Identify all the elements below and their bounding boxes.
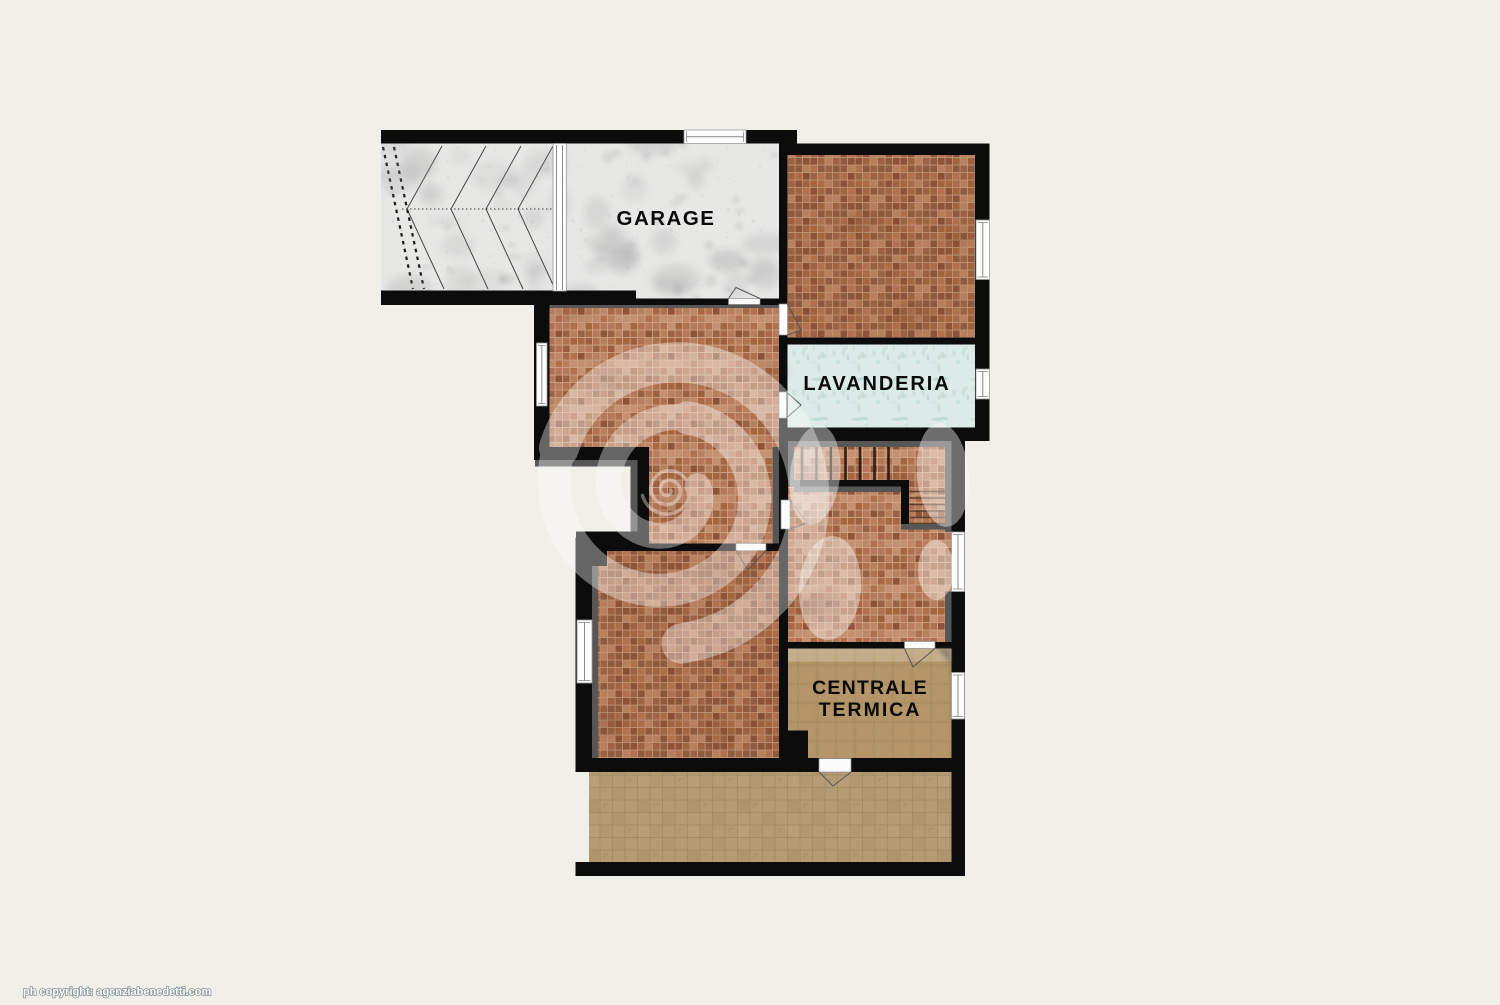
svg-text:CENTRALE: CENTRALE [812, 677, 928, 699]
svg-text:LAVANDERIA: LAVANDERIA [803, 373, 950, 395]
svg-text:TERMICA: TERMICA [819, 699, 922, 721]
svg-text:ph copyright: agenziabenedetti: ph copyright: agenziabenedetti.com [23, 986, 211, 998]
svg-text:GARAGE: GARAGE [617, 207, 716, 230]
